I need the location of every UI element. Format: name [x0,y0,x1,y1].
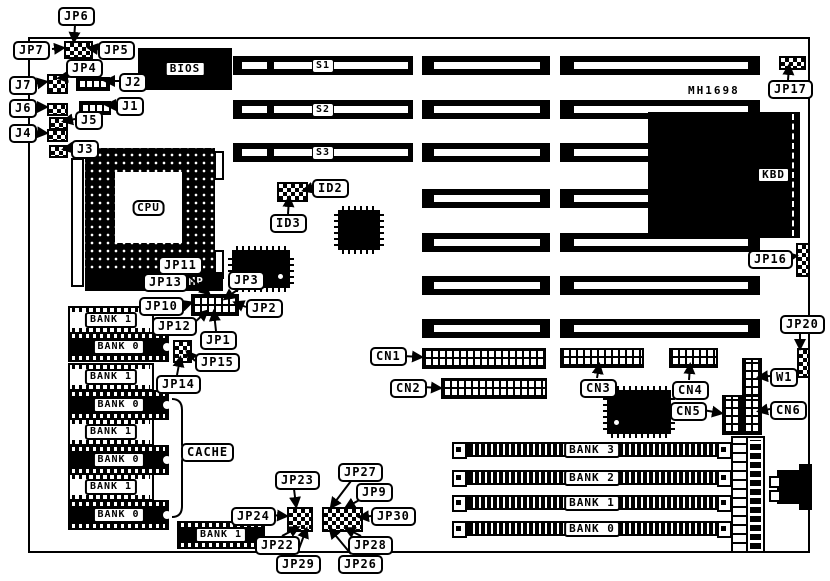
jumper-jp5-jp6-jp7 [64,41,93,59]
header-cn6 [742,395,762,435]
slot-right-1 [560,56,760,75]
callout-jp23: JP23 [275,471,320,490]
callout-jp12: JP12 [152,317,197,336]
slot-right-7 [560,319,760,338]
slot-contact-bar [574,325,748,332]
callout-jp1: JP1 [200,331,237,350]
callout-cn6: CN6 [770,401,807,420]
power-connector-pins [750,440,761,549]
callout-jp15: JP15 [195,353,240,372]
simm-bank2-label: BANK 2 [564,470,620,486]
simm-latch [452,470,467,487]
callout-jp13: JP13 [143,273,188,292]
callout-w1: W1 [770,368,798,387]
callout-jp22: JP22 [255,536,300,555]
simm-latch [452,521,467,538]
plug-notch [769,490,781,502]
header-cn2 [441,378,547,399]
cache-chip-bank0-3: BANK 0 [68,445,169,475]
callout-j7: J7 [9,76,37,95]
callout-jp14: JP14 [156,375,201,394]
jumper-j4 [47,129,68,142]
header-cn1 [422,348,546,369]
chip-notch [163,456,171,464]
slot-contact-bar [434,282,540,289]
callout-id2: ID2 [312,179,349,198]
jumper-block-jp9-jp26-jp27-jp28-jp30 [322,507,363,532]
slot-contact-bar [574,62,748,69]
slot-contact-bar [274,62,408,69]
chip-notch [163,401,171,409]
capacitor [214,151,224,180]
simm-socket-bank1: BANK 1 [452,494,732,511]
cache-region-label: CACHE [181,443,234,462]
slot-contact-bar [242,149,267,156]
header-jp1-jp2-jp10-jp12 [191,294,239,316]
slot-contact-bar [574,282,748,289]
external-plug-base [799,464,812,510]
callout-jp10: JP10 [139,297,184,316]
callout-jp24: JP24 [231,507,276,526]
jumper-jp20 [797,348,810,378]
cache-chip-bank1-3: BANK 1 [68,418,154,446]
slot-contact-bar [274,149,408,156]
pin1-dot [614,420,619,425]
simm-latch [717,442,732,459]
slot-contact-bar [434,62,540,69]
jumper-id2-id3 [277,182,308,202]
callout-j4: J4 [9,124,37,143]
bios-chip: BIOS [138,48,232,90]
chip-notch [163,511,171,519]
callout-cn2: CN2 [390,379,427,398]
slot-mid-1 [422,56,550,75]
cache-chip-label: BANK 0 [92,339,144,355]
callout-jp16: JP16 [748,250,793,269]
plug-notch [769,476,781,488]
callout-cn1: CN1 [370,347,407,366]
simm-latch [452,442,467,459]
cache-chip-bank0-1: BANK 0 [68,332,169,362]
callout-jp5: JP5 [98,41,135,60]
chip-near-cn3 [607,390,671,434]
jumper-j6 [47,103,68,116]
cache-chip-bank1-4: BANK 1 [68,473,154,501]
simm-latch [452,495,467,512]
callout-jp6: JP6 [58,7,95,26]
cache-chip-bank0-4: BANK 0 [68,500,169,530]
callout-cn4: CN4 [672,381,709,400]
simm-bank1-label: BANK 1 [564,495,620,511]
callout-j6: J6 [9,99,37,118]
jumper-j3 [49,145,68,158]
callout-cn5: CN5 [670,402,707,421]
simm-latch [717,470,732,487]
simm-socket-bank2: BANK 2 [452,469,732,486]
slot-s3-label: S3 [312,146,334,160]
header-cn5 [722,395,742,435]
simm-socket-bank0: BANK 0 [452,520,732,537]
cache-chip-label: BANK 1 [85,312,137,328]
callout-j1: J1 [116,97,144,116]
callout-jp7: JP7 [13,41,50,60]
cache-chip-label: BANK 1 [85,369,137,385]
pin1-dot [278,274,283,279]
slot-s1: S1 [233,56,413,75]
motherboard-diagram: MH1698 S1 S2 S3 BIOS KBD CPU [0,0,830,581]
callout-j3: J3 [71,140,99,159]
header-cn4 [669,348,718,368]
keyboard-connector: KBD [648,112,800,238]
jumper-jp14-jp15 [173,340,192,363]
kbd-dashed-edge [792,114,794,236]
callout-jp27: JP27 [338,463,383,482]
callout-id3: ID3 [270,214,307,233]
cache-chip-label: BANK 1 [85,424,137,440]
slot-contact-bar [434,106,540,113]
simm-latch [717,521,732,538]
callout-jp17: JP17 [768,80,813,99]
callout-jp28: JP28 [348,536,393,555]
jumper-jp16 [796,243,810,277]
simm-bank3-label: BANK 3 [564,442,620,458]
header-cn3 [560,348,644,368]
slot-contact-bar [242,62,267,69]
callout-jp26: JP26 [338,555,383,574]
slot-mid-3 [422,143,550,162]
callout-jp4: JP4 [66,59,103,78]
power-connector-pads [733,438,748,551]
slot-s1-label: S1 [312,59,334,73]
callout-j2: J2 [119,73,147,92]
callout-jp3: JP3 [228,271,265,290]
slot-mid-5 [422,233,550,252]
slot-s2: S2 [233,100,413,119]
header-w1 [742,358,762,398]
cpu-label: CPU [132,200,165,216]
cache-chip-label: BANK 1 [85,479,137,495]
cache-chip-bank0-2: BANK 0 [68,390,169,420]
simm-socket-bank3: BANK 3 [452,441,732,458]
bios-label: BIOS [165,61,206,77]
simm-bank0-label: BANK 0 [564,521,620,537]
slot-contact-bar [434,195,540,202]
cache-chip-label: BANK 0 [92,452,144,468]
power-connector [731,436,765,553]
callout-jp2: JP2 [246,299,283,318]
slot-contact-bar [574,239,748,246]
kbd-label: KBD [757,167,790,183]
slot-s3: S3 [233,143,413,162]
callout-cn3: CN3 [580,379,617,398]
bottom-bank1-label: BANK 1 [195,527,247,543]
header-j2 [76,77,110,91]
cache-chip-label: BANK 0 [92,397,144,413]
jumper-block-jp22-jp23-jp24-jp29 [287,507,313,532]
board-part-number: MH1698 [688,84,740,97]
slot-contact-bar [434,239,540,246]
simm-latch [717,495,732,512]
slot-mid-4 [422,189,550,208]
slot-contact-bar [274,106,408,113]
slot-mid-2 [422,100,550,119]
jumper-jp17 [779,56,806,70]
callout-jp9: JP9 [356,483,393,502]
cpu-die-area: CPU [115,172,182,243]
cache-chip-label: BANK 0 [92,507,144,523]
callout-jp20: JP20 [780,315,825,334]
slot-contact-bar [242,106,267,113]
slot-mid-7 [422,319,550,338]
slot-mid-6 [422,276,550,295]
chip-near-id3 [338,210,380,250]
cache-chip-bank1-2: BANK 1 [68,363,154,391]
callout-jp29: JP29 [276,555,321,574]
slot-contact-bar [434,149,540,156]
cpu-side-bar [71,158,84,287]
callout-j5: J5 [75,111,103,130]
jumper-j7-jp4 [47,74,68,94]
chip-notch [163,343,171,351]
slot-s2-label: S2 [312,103,334,117]
slot-right-6 [560,276,760,295]
callout-jp30: JP30 [371,507,416,526]
slot-contact-bar [434,325,540,332]
